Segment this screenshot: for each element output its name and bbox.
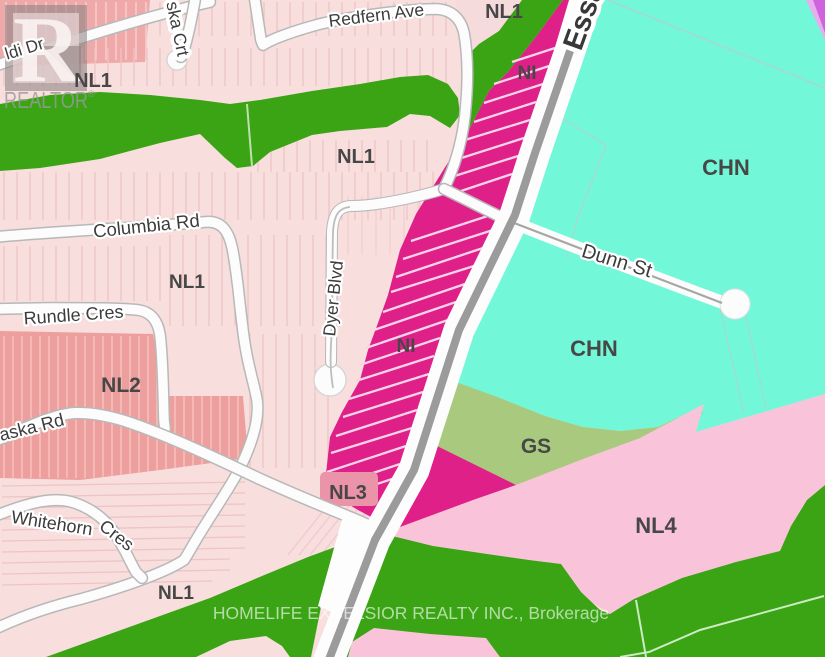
svg-text:CHN: CHN (570, 336, 618, 361)
svg-text:NI: NI (518, 63, 537, 84)
svg-text:NL3: NL3 (329, 482, 367, 504)
svg-text:NL1: NL1 (169, 272, 205, 293)
svg-text:NL1: NL1 (337, 146, 375, 168)
svg-text:HOMELIFE EXCELSIOR REALTY INC.: HOMELIFE EXCELSIOR REALTY INC., Brokerag… (213, 603, 609, 623)
svg-text:CHN: CHN (702, 155, 750, 180)
svg-text:NL1: NL1 (158, 583, 194, 604)
svg-text:NL2: NL2 (101, 374, 141, 397)
svg-text:NL4: NL4 (635, 513, 677, 538)
svg-text:GS: GS (521, 435, 551, 458)
svg-text:NL1: NL1 (485, 1, 523, 23)
svg-text:NI: NI (397, 336, 416, 357)
svg-text:NL1: NL1 (74, 70, 112, 92)
